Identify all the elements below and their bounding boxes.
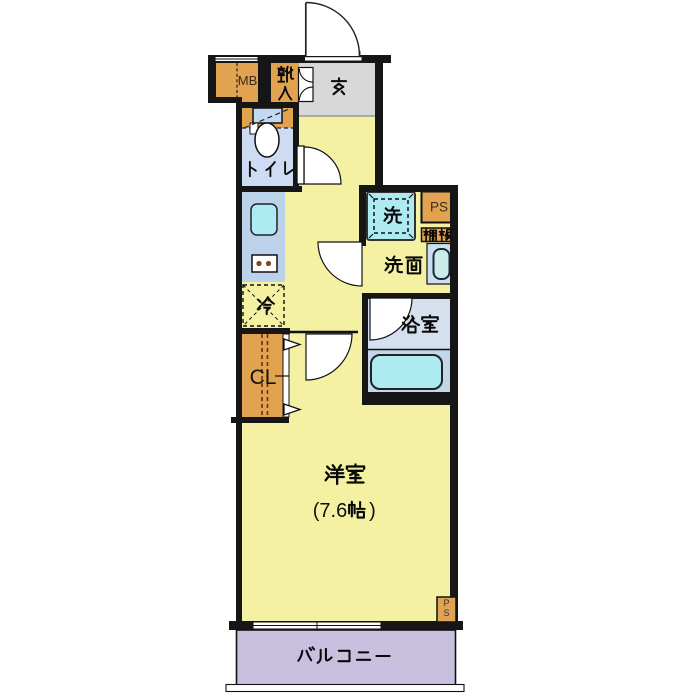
svg-text:P: P — [443, 598, 449, 608]
svg-text:(7.6: (7.6 — [313, 500, 347, 522]
svg-text:): ) — [369, 500, 376, 522]
svg-text:MB: MB — [238, 73, 258, 88]
svg-text:PS: PS — [430, 200, 448, 215]
svg-text:CL: CL — [250, 366, 277, 389]
svg-text:S: S — [443, 608, 449, 618]
